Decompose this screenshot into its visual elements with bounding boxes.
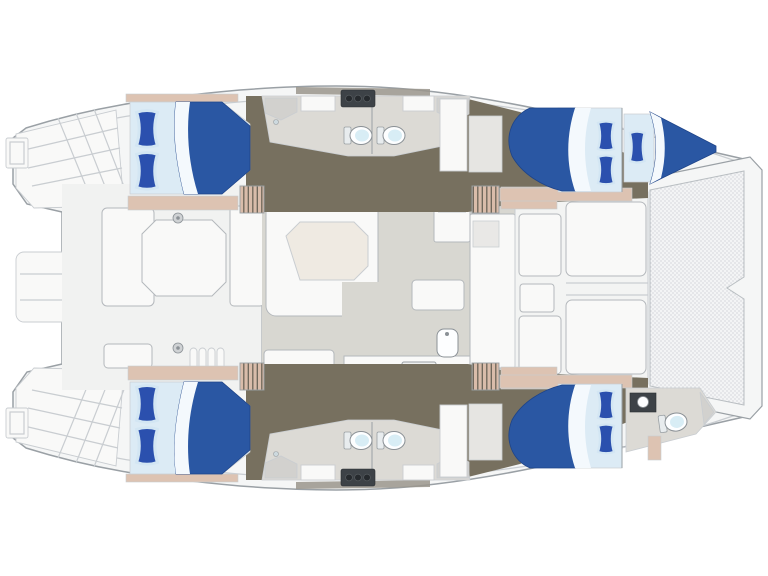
pillow (598, 390, 614, 419)
winch (173, 343, 183, 353)
forward-bench-port (566, 202, 646, 276)
companionway-steps (472, 363, 499, 390)
pillow (137, 111, 158, 148)
pillow (137, 428, 158, 465)
cabin-shelf (128, 196, 238, 210)
shower-drain (274, 452, 279, 457)
bow-head-sink (638, 397, 649, 408)
wardrobe (469, 404, 502, 460)
cockpit-table (142, 220, 226, 296)
pillow (137, 153, 158, 190)
companionway-steps (240, 363, 264, 390)
winch (173, 213, 183, 223)
pillow (598, 121, 614, 150)
cockpit-corner-seat (104, 344, 152, 368)
wardrobe (440, 405, 467, 477)
cockpit-aft-bench (230, 206, 264, 306)
pillow (137, 386, 158, 423)
trampoline (638, 157, 762, 419)
pillow (630, 132, 645, 163)
wardrobe (469, 116, 502, 172)
aft-cockpit (62, 182, 264, 392)
wardrobe (440, 99, 467, 171)
shower-drain (274, 120, 279, 125)
catamaran-floor-plan (0, 0, 768, 576)
catamaran-floor-plan-page (0, 0, 768, 576)
toilet (377, 432, 405, 450)
forward-seat-starboard (519, 316, 561, 374)
forward-cockpit (515, 180, 648, 394)
forward-bench-starboard (566, 300, 646, 374)
vanity-sinks (341, 469, 375, 486)
galley-island (412, 280, 464, 310)
galley-appliance (473, 221, 499, 247)
port-heads (262, 90, 470, 156)
toilet (344, 432, 372, 450)
cabin-shelf (128, 366, 238, 380)
forward-table (520, 284, 554, 312)
vanity-cabinet (403, 465, 434, 480)
vanity-cabinet (301, 96, 335, 111)
forward-seat-port (519, 214, 561, 276)
companionway-steps (240, 186, 264, 213)
companionway-steps (472, 186, 499, 213)
vanity-cabinet (403, 96, 434, 111)
toilet (344, 127, 372, 145)
galley-sink (437, 329, 458, 357)
vanity-sinks (341, 90, 375, 107)
pillow (598, 155, 614, 184)
salon-table (286, 222, 368, 280)
pillow (598, 424, 614, 453)
starboard-bow-head (626, 388, 716, 460)
toilet (377, 127, 405, 145)
starboard-heads (262, 420, 470, 486)
vanity-cabinet (301, 465, 335, 480)
